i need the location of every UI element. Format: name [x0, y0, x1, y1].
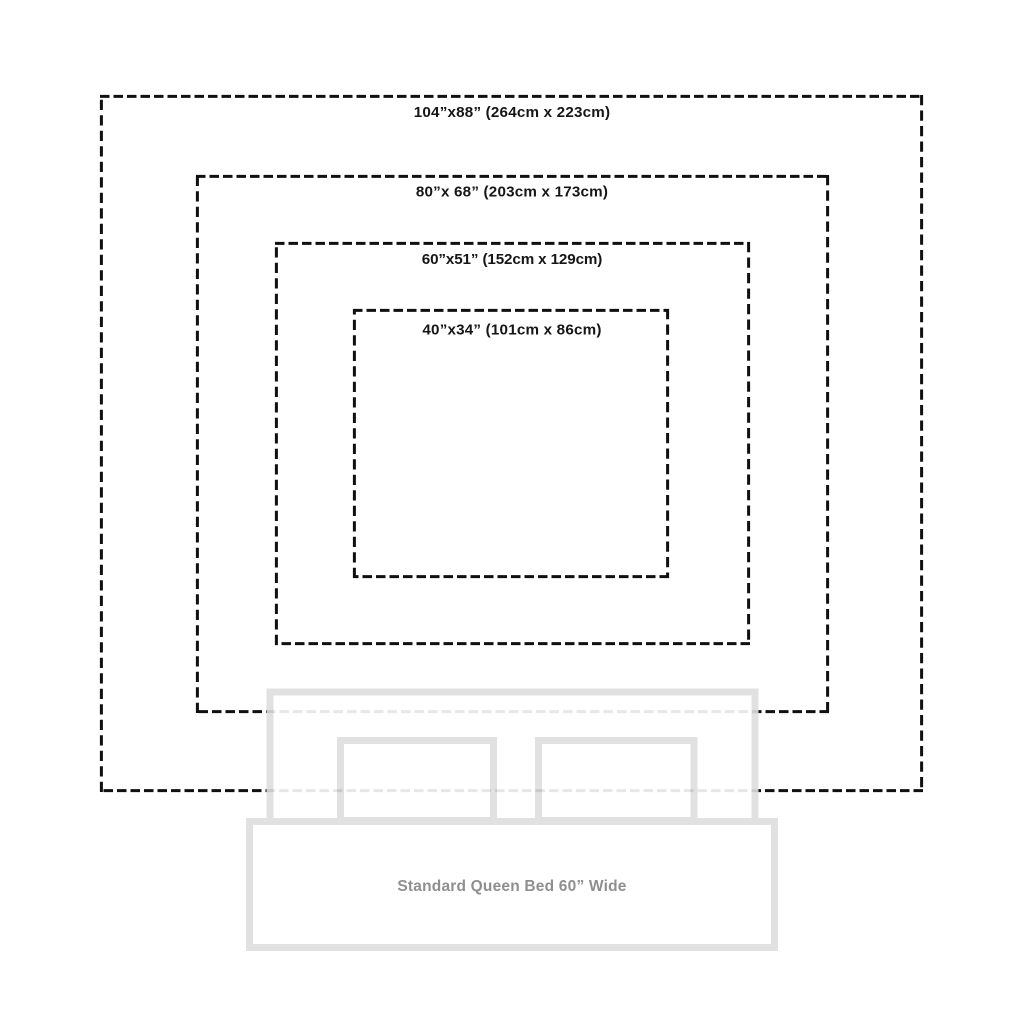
svg-text:40”x34” (101cm x 86cm): 40”x34” (101cm x 86cm)	[422, 321, 601, 338]
svg-text:80”x 68” (203cm x 173cm): 80”x 68” (203cm x 173cm)	[416, 183, 608, 200]
svg-text:60”x51” (152cm x 129cm): 60”x51” (152cm x 129cm)	[422, 251, 603, 268]
svg-text:Standard Queen Bed 60” Wide: Standard Queen Bed 60” Wide	[397, 878, 626, 895]
svg-text:104”x88” (264cm x 223cm): 104”x88” (264cm x 223cm)	[414, 104, 610, 121]
